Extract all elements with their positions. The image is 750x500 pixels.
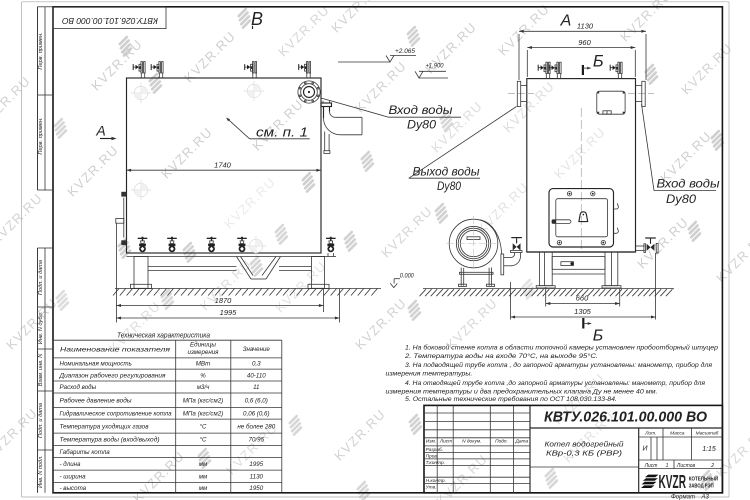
svg-text:+1.900: +1.900: [426, 63, 444, 70]
svg-text:0.000: 0.000: [400, 273, 414, 280]
svg-text:Вход воды: Вход воды: [389, 103, 453, 117]
svg-text:м3/ч: м3/ч: [197, 384, 210, 391]
svg-text:измерения температуры.: измерения температуры.: [386, 370, 473, 377]
svg-text:Техническая характеристика: Техническая характеристика: [117, 333, 210, 340]
svg-text:КВТУ.026.101.00.000 ВО: КВТУ.026.101.00.000 ВО: [544, 410, 708, 426]
svg-text:мм: мм: [199, 485, 208, 492]
svg-text:Т.контр.: Т.контр.: [426, 460, 445, 466]
svg-text:Лист: Лист: [644, 463, 658, 469]
svg-text:660: 660: [576, 294, 589, 303]
svg-text:мм: мм: [199, 473, 208, 480]
svg-text:Инв. N дубл.: Инв. N дубл.: [38, 312, 44, 344]
svg-text:Вход воды: Вход воды: [657, 177, 720, 191]
svg-text:А: А: [95, 123, 105, 139]
svg-text:Изм.: Изм.: [426, 439, 436, 445]
svg-text:А: А: [560, 13, 572, 30]
svg-text:0,3: 0,3: [252, 361, 261, 368]
svg-text:°С: °С: [200, 423, 207, 430]
svg-text:1995: 1995: [249, 461, 263, 468]
svg-text:Подп. и дата: Подп. и дата: [38, 403, 44, 438]
svg-text:960: 960: [578, 38, 591, 47]
svg-text:мм: мм: [199, 461, 208, 468]
svg-text:измерения температуры и два пр: измерения температуры и два предохраните…: [386, 387, 658, 395]
svg-text:Н.контр.: Н.контр.: [426, 478, 446, 484]
svg-text:см. п. 1: см. п. 1: [256, 125, 308, 140]
svg-text:Подп. и дата: Подп. и дата: [38, 260, 44, 295]
svg-text:А3: А3: [701, 494, 710, 500]
svg-text:Диапазон рабочего регулировани: Диапазон рабочего регулирования: [58, 372, 166, 379]
svg-text:Dy80: Dy80: [437, 179, 461, 193]
svg-text:1870: 1870: [215, 296, 233, 305]
svg-text:не более 280: не более 280: [237, 423, 275, 430]
svg-text:Температура воды (вход/выход): Температура воды (вход/выход): [60, 437, 160, 444]
svg-text:Гидравлическое сопротивление к: Гидравлическое сопротивление котла: [60, 411, 173, 418]
svg-text:Инв. N подл.: Инв. N подл.: [38, 455, 44, 488]
svg-text:Dy80: Dy80: [407, 118, 436, 132]
svg-text:Формат: Формат: [671, 494, 695, 500]
svg-text:Дата: Дата: [514, 439, 528, 445]
svg-text:Листов: Листов: [676, 463, 696, 469]
svg-text:1: 1: [666, 463, 669, 469]
svg-text:11: 11: [253, 384, 259, 391]
svg-text:3. На подводящей трубе котла: 3. На подводящей трубе котла , до запорн…: [405, 361, 712, 369]
svg-text:%: %: [200, 372, 206, 379]
svg-text:70/95: 70/95: [249, 437, 265, 444]
svg-text:°С: °С: [200, 437, 207, 444]
svg-text:КОТЕЛЬНЫЙ: КОТЕЛЬНЫЙ: [689, 474, 719, 482]
svg-text:Лист: Лист: [439, 439, 452, 445]
svg-text:0,6 (6,0): 0,6 (6,0): [245, 398, 268, 405]
svg-text:Номинальная мощность: Номинальная мощность: [60, 361, 132, 368]
svg-text:1995: 1995: [220, 308, 238, 317]
svg-text:измерения: измерения: [188, 349, 220, 356]
svg-text:40-110: 40-110: [247, 372, 266, 379]
svg-text:КВТУ.026.101.00.000 ВО: КВТУ.026.101.00.000 ВО: [62, 16, 158, 26]
svg-text:1130: 1130: [250, 473, 264, 480]
svg-text:+2.065: +2.065: [395, 48, 415, 55]
svg-text:Утв.: Утв.: [426, 485, 437, 491]
svg-text:2: 2: [710, 463, 714, 469]
svg-text:1:15: 1:15: [702, 446, 716, 453]
svg-text:Габариты котла: Габариты котла: [60, 449, 111, 456]
svg-text:- ширина: - ширина: [60, 473, 87, 480]
svg-text:Значение: Значение: [243, 346, 271, 353]
svg-text:Пров.: Пров.: [426, 453, 439, 459]
svg-text:Б: Б: [593, 53, 604, 71]
svg-text:МПа (кгс/см2): МПа (кгс/см2): [183, 411, 223, 418]
svg-text:1950: 1950: [249, 485, 263, 492]
svg-text:KVZR: KVZR: [659, 471, 687, 492]
svg-text:Лит.: Лит.: [644, 431, 656, 437]
svg-text:Перв. примен.: Перв. примен.: [38, 32, 44, 69]
svg-text:Котел водогрейный: Котел водогрейный: [545, 440, 624, 449]
svg-text:2. Температура воды на входе: 2. Температура воды на входе 70°С, на вы…: [404, 352, 598, 360]
svg-text:4. На отводящей трубе котла ,: 4. На отводящей трубе котла ,до запорной…: [405, 379, 705, 387]
svg-text:Рабочее давление воды: Рабочее давление воды: [60, 398, 132, 405]
svg-text:- длина: - длина: [60, 461, 82, 468]
svg-text:Расход воды: Расход воды: [60, 384, 97, 391]
svg-text:1305: 1305: [574, 307, 592, 316]
svg-text:- высота: - высота: [60, 485, 87, 492]
svg-text:Температура уходящих газов: Температура уходящих газов: [60, 423, 150, 430]
svg-text:Масса: Масса: [670, 431, 685, 437]
svg-text:1130: 1130: [577, 21, 594, 30]
svg-text:МВт: МВт: [196, 361, 210, 368]
svg-text:Единицы: Единицы: [190, 342, 216, 349]
svg-text:N докум.: N докум.: [462, 439, 481, 445]
svg-text:Б: Б: [593, 328, 603, 345]
svg-text:Dy80: Dy80: [666, 192, 696, 206]
svg-text:МПа (кгс/см2): МПа (кгс/см2): [183, 398, 223, 405]
svg-text:Подп.: Подп.: [495, 439, 508, 445]
svg-text:1. На боковой стенке котла в: 1. На боковой стенке котла в области топ…: [405, 343, 718, 351]
svg-text:5. Остальные технические треб: 5. Остальные технические требования по О…: [405, 395, 617, 403]
svg-text:Разраб.: Разраб.: [426, 447, 443, 453]
svg-text:0,06 (0,6): 0,06 (0,6): [243, 411, 269, 418]
svg-text:КВр-0,3 КБ (РВР): КВр-0,3 КБ (РВР): [546, 449, 622, 458]
svg-text:Наименование показателя: Наименование показателя: [60, 347, 171, 354]
svg-text:Выход воды: Выход воды: [413, 164, 480, 178]
svg-text:Масштаб: Масштаб: [696, 431, 719, 437]
svg-text:ЗАВОД РЭП: ЗАВОД РЭП: [689, 483, 714, 489]
svg-text:Перв. примен.: Перв. примен.: [38, 117, 44, 154]
svg-text:1740: 1740: [214, 160, 232, 169]
svg-text:Взам. инв. N: Взам. инв. N: [38, 353, 44, 387]
